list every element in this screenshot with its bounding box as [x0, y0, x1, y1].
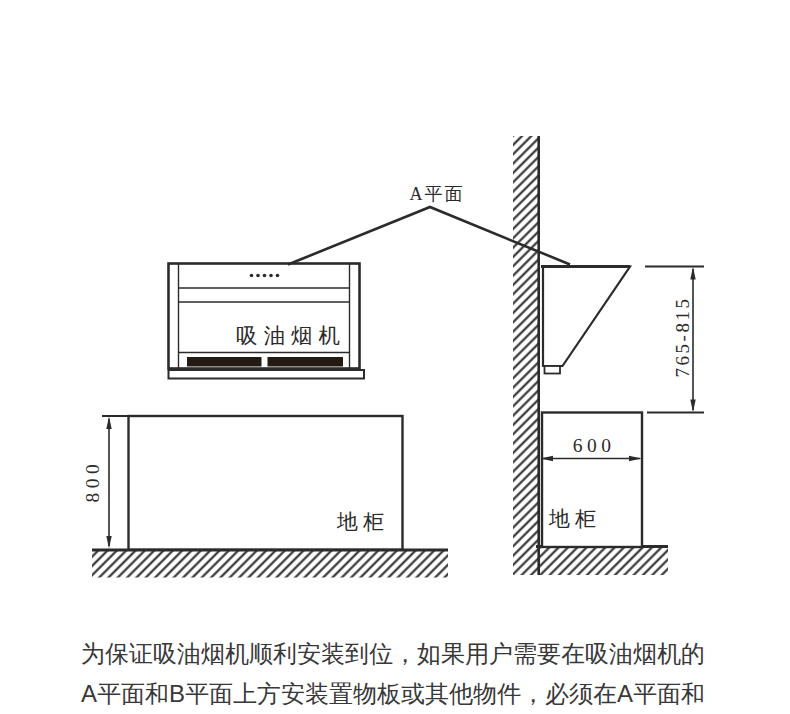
wall-section — [513, 136, 539, 575]
floor-left-hatch — [92, 550, 448, 578]
hood-side-bottom-lip — [545, 366, 561, 374]
floor-left — [92, 550, 448, 578]
hood-bottom-tray — [169, 370, 365, 379]
dim-range-arrow-up — [690, 267, 695, 280]
dim-range-arrow-down — [690, 400, 695, 413]
grease-filter-right — [268, 357, 344, 367]
dim-range-value: 765-815 — [672, 297, 693, 378]
dim-800-arrow-down — [106, 536, 111, 549]
floor-right — [536, 547, 668, 576]
installation-diagram-page: 吸油烟机 A平面 800 765-815 — [0, 0, 790, 714]
cabinet-right-label: 地柜 — [548, 507, 601, 531]
dimension-765-815: 765-815 — [645, 267, 704, 413]
dim-600-value: 600 — [573, 435, 616, 456]
a-plane-label: A平面 — [410, 184, 465, 204]
cabinet-left-label: 地柜 — [336, 510, 389, 534]
installation-diagram: 吸油烟机 A平面 800 765-815 — [0, 0, 790, 714]
dim-800-value: 800 — [82, 460, 103, 503]
wall-hatch — [513, 136, 539, 575]
range-hood-side — [541, 267, 630, 374]
dimension-800: 800 — [82, 417, 112, 549]
grease-filter-left — [187, 357, 262, 367]
floor-right-hatch — [539, 547, 668, 575]
installation-note: 为保证吸油烟机顺利安装到位，如果用户需要在吸油烟机的 A平面和B平面上方安装置物… — [81, 634, 741, 713]
installation-note-line2: A平面和B平面上方安装置物板或其他物件，必须在A平面和 — [81, 674, 741, 714]
hood-front-label: 吸油烟机 — [236, 324, 346, 348]
range-hood-front: 吸油烟机 — [169, 264, 365, 379]
hood-side-profile — [543, 267, 630, 367]
installation-note-line1: 为保证吸油烟机顺利安装到位，如果用户需要在吸油烟机的 — [81, 634, 741, 674]
dim-800-arrow-up — [106, 417, 111, 430]
